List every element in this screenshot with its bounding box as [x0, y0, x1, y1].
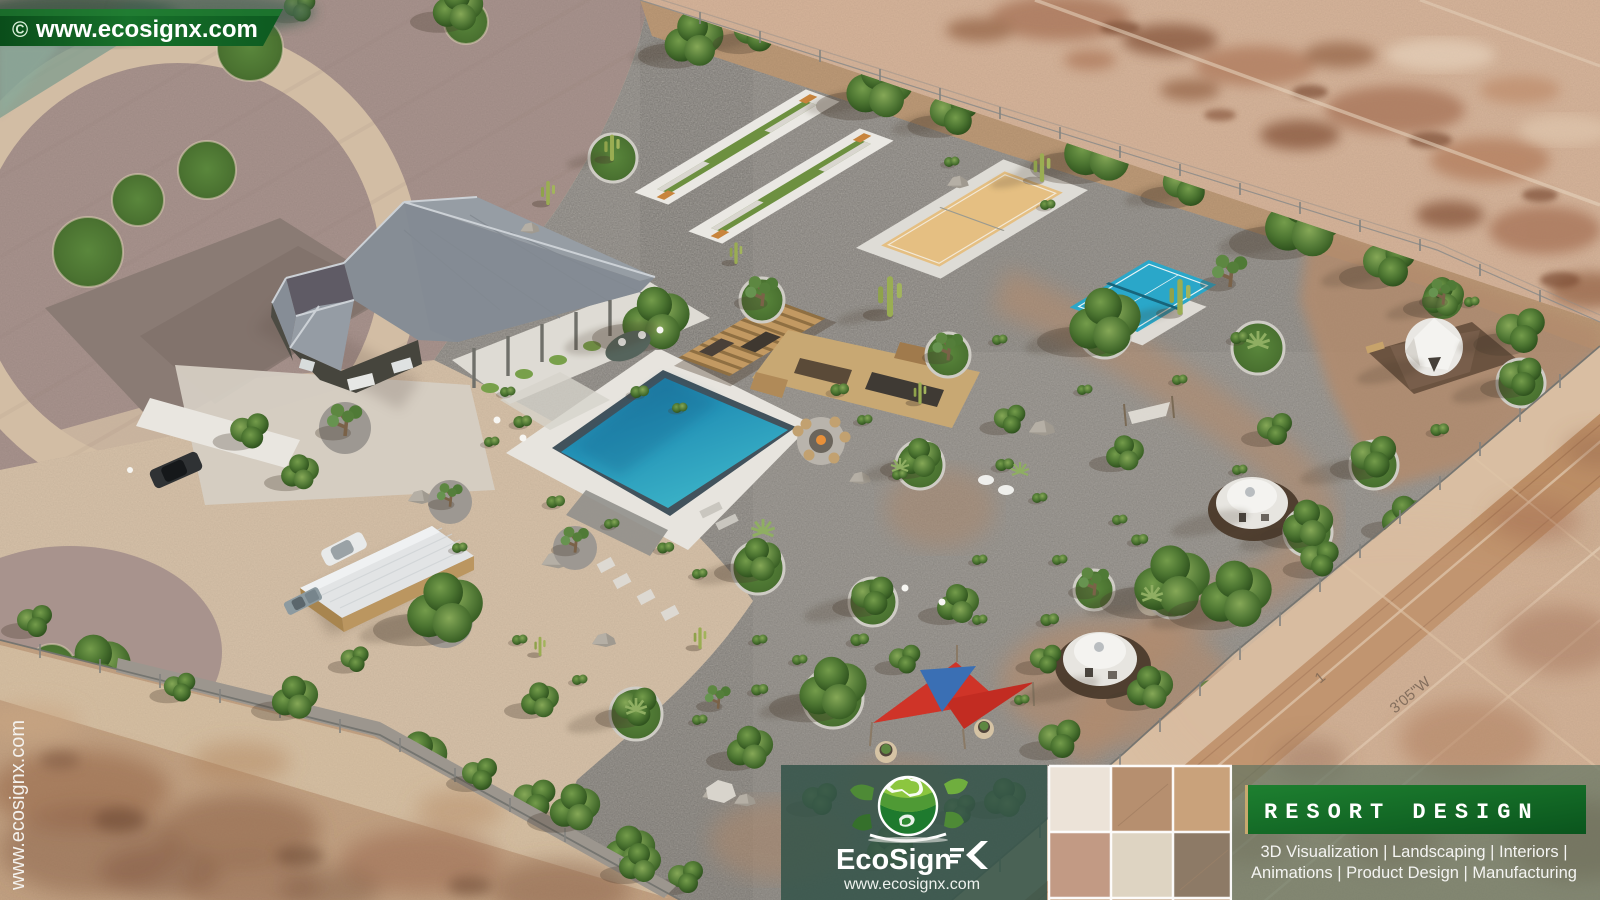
svg-text:Animations | Product Design |: Animations | Product Design | Manufactur… — [1251, 864, 1577, 882]
svg-text:www.ecosignx.com: www.ecosignx.com — [7, 720, 29, 891]
svg-text:©: © — [12, 17, 28, 42]
svg-text:3D Visualization | Landscaping: 3D Visualization | Landscaping | Interio… — [1261, 843, 1568, 861]
svg-text:www.ecosignx.com: www.ecosignx.com — [843, 876, 980, 893]
svg-text:RESORT DESIGN: RESORT DESIGN — [1264, 800, 1540, 825]
svg-text:EcoSign: EcoSign — [836, 844, 952, 876]
svg-text:www.ecosignx.com: www.ecosignx.com — [35, 16, 258, 43]
